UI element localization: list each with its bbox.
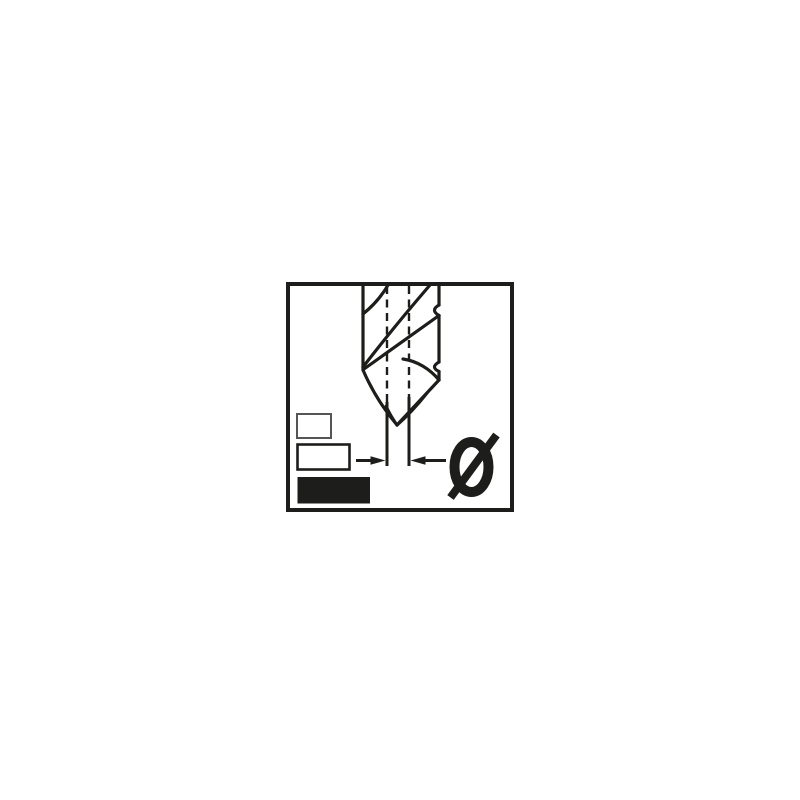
page-background: Ø	[0, 0, 800, 800]
drill-flute-line-1	[363, 285, 388, 314]
dimension-extension-lines	[387, 397, 409, 466]
drill-right-notch-1	[435, 305, 440, 316]
diameter-symbol-icon	[451, 435, 497, 498]
drill-bit-icon	[363, 285, 439, 425]
arrow-head-right	[411, 456, 426, 465]
size-boxes	[297, 414, 370, 504]
drill-tip-face-edge	[397, 393, 427, 425]
drill-flute-line-2	[363, 285, 430, 367]
arrow-head-left	[371, 456, 386, 465]
drill-diameter-pictogram	[0, 0, 800, 800]
pictogram-frame	[288, 284, 512, 510]
large-filled-box-icon	[298, 477, 371, 504]
medium-outline-box-icon	[298, 445, 350, 470]
drill-flute-line-3	[364, 316, 439, 370]
small-outline-box-icon	[297, 414, 331, 438]
diameter-dimension-arrows	[356, 456, 446, 465]
